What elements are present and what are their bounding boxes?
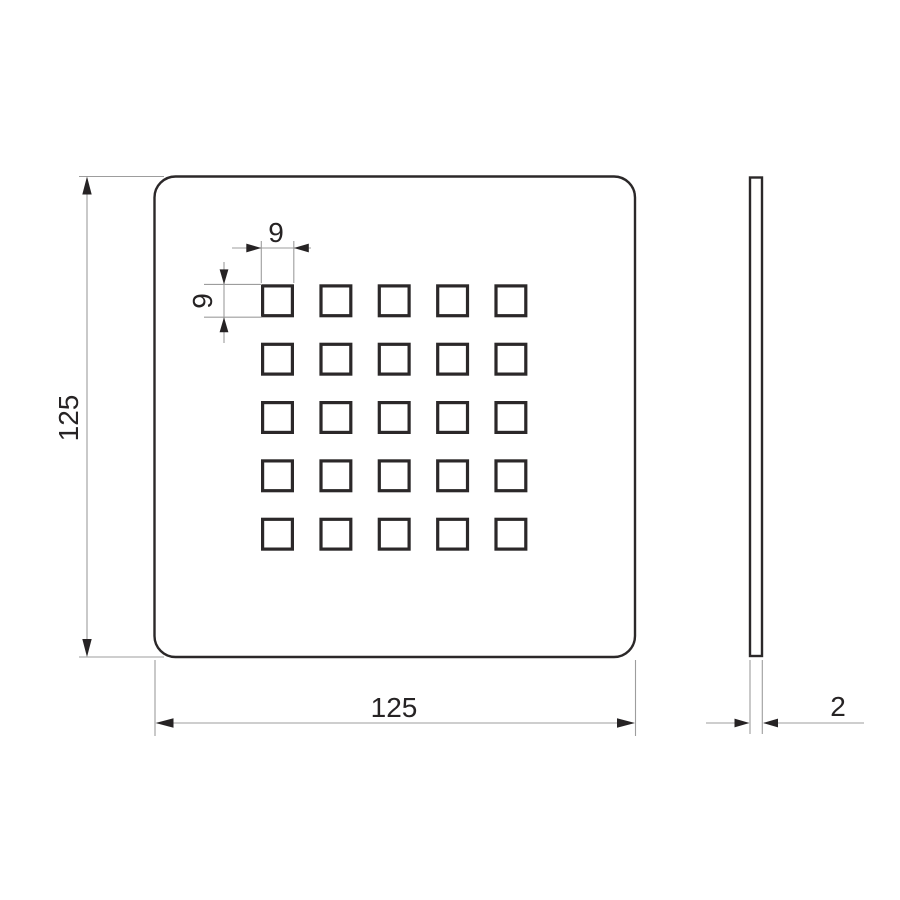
dim-label-thickness: 2	[830, 691, 846, 722]
dim-thickness: 2	[706, 660, 864, 734]
arrow-left-icon	[763, 719, 778, 728]
arrow-up-icon	[82, 177, 91, 195]
technical-drawing-page: 125 125 9 9	[0, 0, 900, 900]
arrow-left-icon	[156, 718, 174, 727]
dim-label-hole-width: 9	[268, 217, 284, 248]
dim-plate-height: 125	[53, 177, 164, 658]
arrow-right-icon	[735, 719, 750, 728]
dim-plate-width: 125	[155, 660, 636, 736]
arrow-right-icon	[617, 718, 635, 727]
front-view	[155, 177, 636, 658]
dim-label-hole-height: 9	[187, 293, 218, 309]
drawing-svg: 125 125 9 9	[0, 0, 900, 900]
arrow-down-icon	[82, 639, 91, 657]
side-view-plate	[750, 178, 762, 657]
dim-label-plate-width: 125	[371, 692, 418, 723]
front-view-plate	[155, 177, 636, 658]
dim-label-plate-height: 125	[53, 395, 84, 442]
side-view	[750, 178, 762, 657]
